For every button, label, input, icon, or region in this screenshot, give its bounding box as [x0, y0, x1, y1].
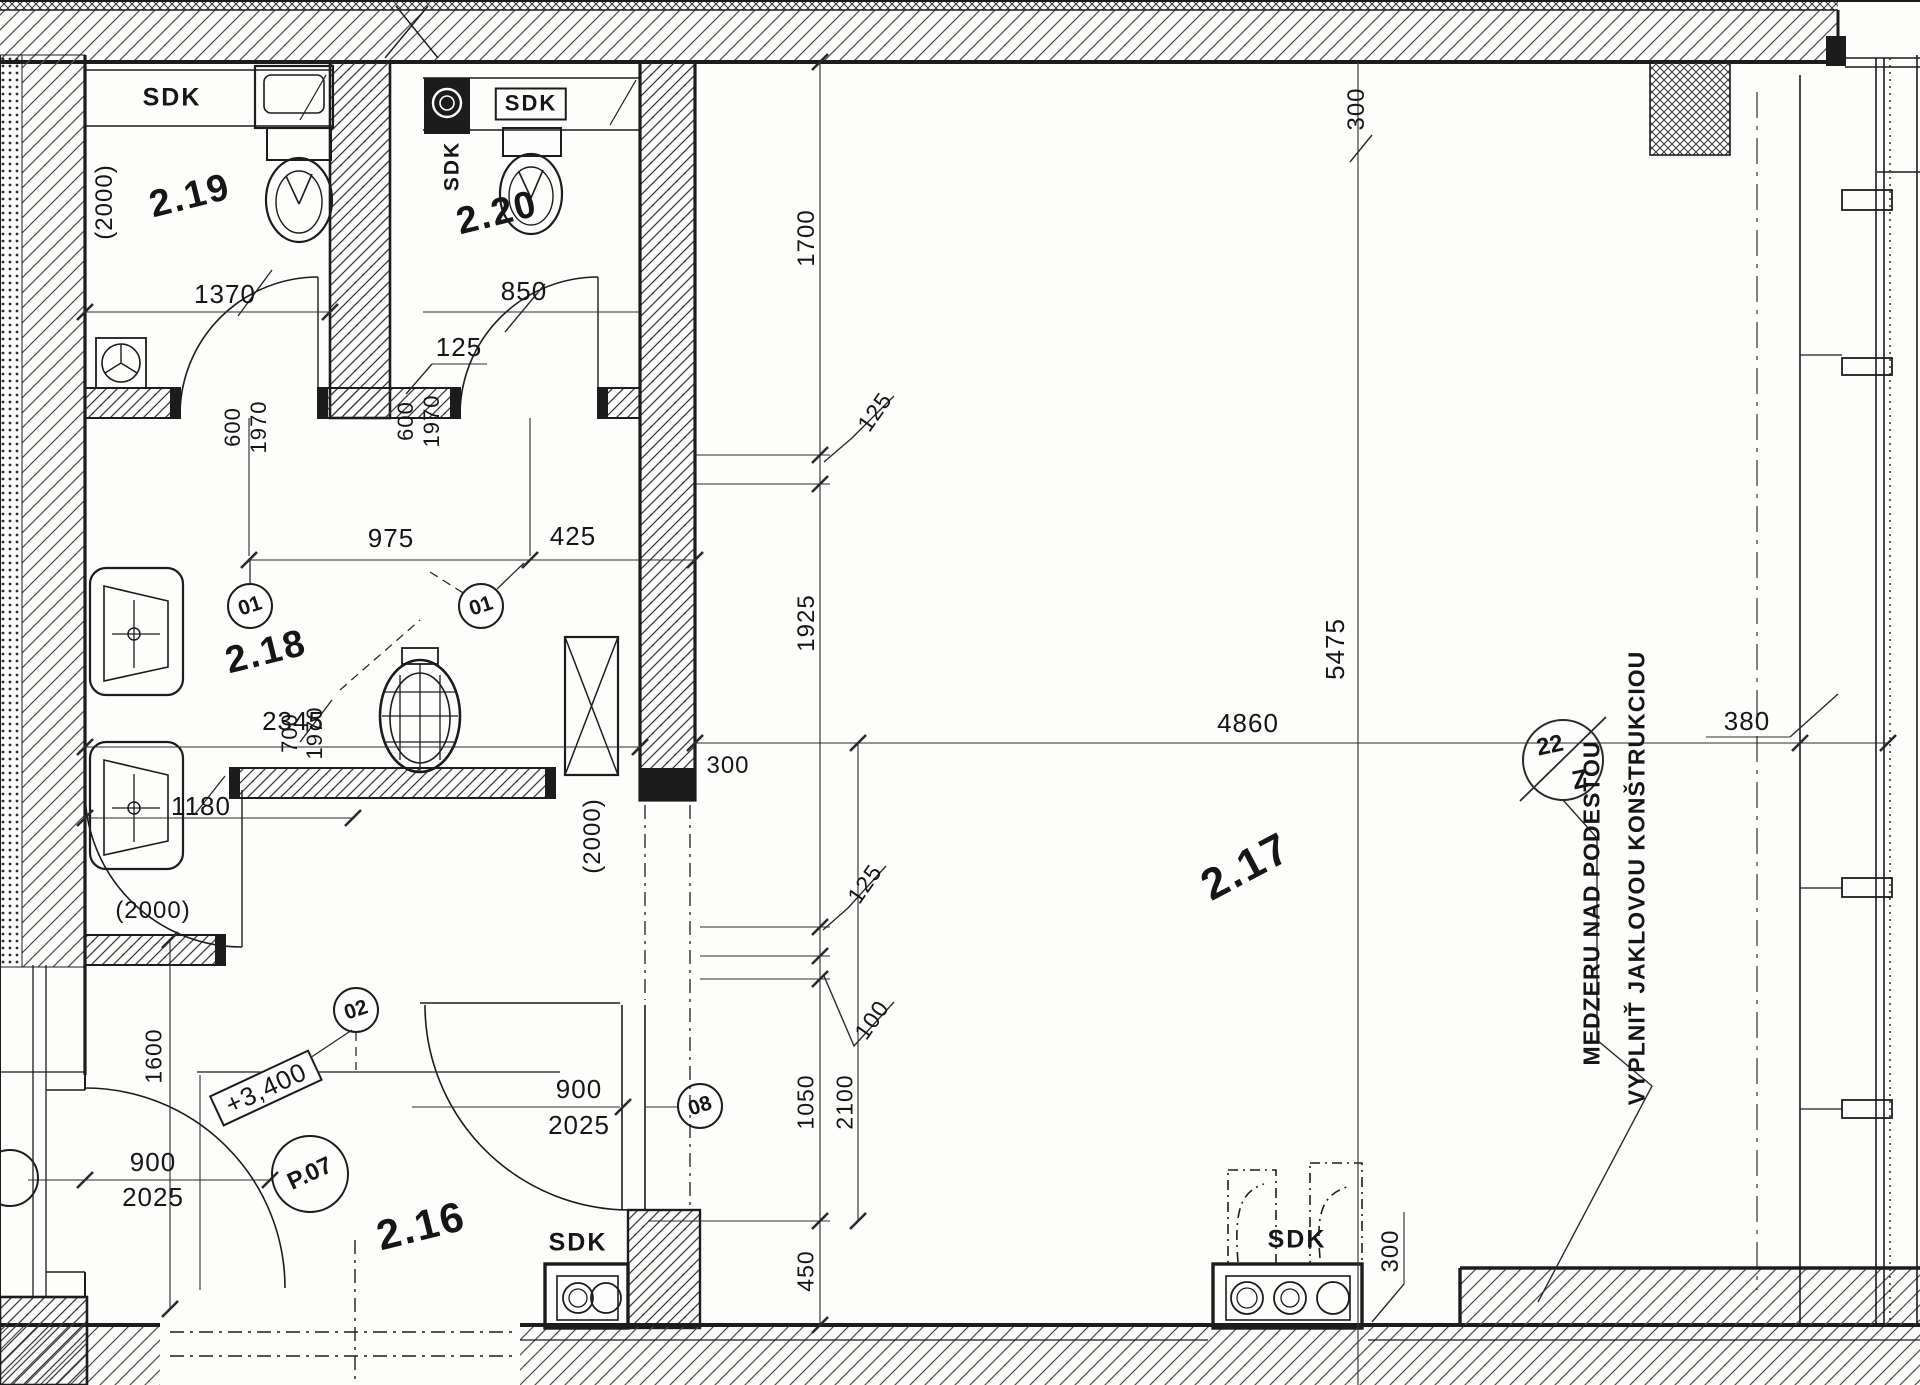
dim-600-220: 600	[395, 401, 417, 441]
dim-1970-216: 1970	[304, 707, 326, 760]
dim-425: 425	[550, 523, 596, 549]
dim-850: 850	[501, 278, 547, 304]
dim-2025-p07: 2025	[122, 1184, 184, 1210]
dim-2000-216: (2000)	[115, 899, 190, 923]
dim-380: 380	[1724, 708, 1770, 734]
note-medzeru-nad-podestou: MEDZERU NAD PODESTOU	[1581, 741, 1604, 1066]
dim-2000-218: (2000)	[581, 798, 605, 873]
dim-900-08: 900	[556, 1076, 602, 1102]
dim-900-p07: 900	[130, 1149, 176, 1175]
dim-2025-08: 2025	[548, 1112, 610, 1138]
detail-marker-22: 22	[1534, 731, 1565, 760]
dim-4860: 4860	[1217, 710, 1279, 736]
dim-1600: 1600	[143, 1028, 166, 1083]
sdk-label-217: SDK	[1268, 1228, 1327, 1253]
fixtures-layer	[90, 66, 1362, 1328]
sdk-label-219: SDK	[143, 86, 202, 111]
dim-1970-220: 1970	[421, 395, 443, 448]
dim-1970-219: 1970	[248, 401, 270, 454]
sdk-label-220-boxed: SDK	[495, 88, 567, 121]
dim-1370: 1370	[194, 281, 256, 307]
window-assembly	[1757, 55, 1920, 1325]
dim-975: 975	[368, 525, 414, 551]
floor-plan: 2.19 2.20 2.18 2.16 2.17 SDK SDK SDK SDK…	[0, 0, 1920, 1385]
dimension-lines	[28, 54, 1896, 1333]
dim-450: 450	[795, 1250, 818, 1291]
sdk-label-216: SDK	[549, 1231, 608, 1256]
sdk-label-220-wall: SDK	[442, 141, 463, 191]
dim-300-wall: 300	[706, 754, 749, 778]
dim-5475: 5475	[1322, 618, 1348, 680]
dim-1925: 1925	[795, 594, 819, 651]
dim-1700: 1700	[795, 209, 819, 266]
note-vyplnit-jaklovou: VYPLNIŤ JAKLOVOU KONŠTRUKCIOU	[1626, 651, 1649, 1106]
dim-700-216: 700	[279, 713, 301, 753]
dim-300-top: 300	[1345, 87, 1369, 130]
door-tag-circles	[0, 584, 722, 1212]
dim-125-220: 125	[436, 334, 482, 360]
leader-lines	[250, 560, 1652, 1302]
dim-2000-219: (2000)	[93, 164, 117, 239]
dim-1180: 1180	[171, 793, 231, 819]
dim-600-219: 600	[222, 407, 244, 447]
dim-2100: 2100	[834, 1074, 857, 1129]
dim-300-bottom: 300	[1379, 1229, 1403, 1272]
dim-1050: 1050	[795, 1074, 818, 1129]
